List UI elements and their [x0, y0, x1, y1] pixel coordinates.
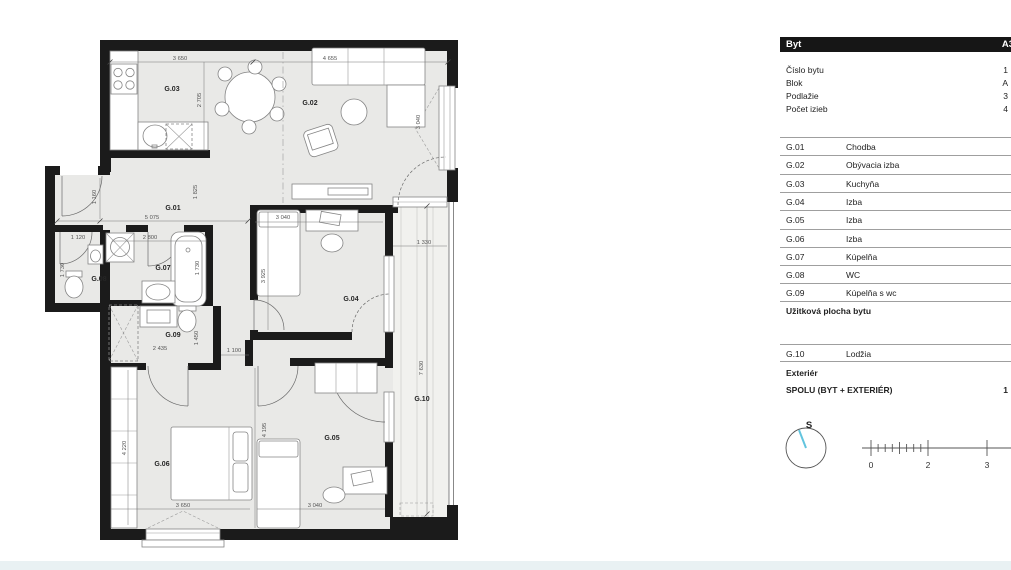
info-row-podlazie: Podlažie 3	[780, 90, 1011, 103]
table-row: G.08WC	[780, 265, 1011, 283]
dim-hall-width: 1 825	[193, 185, 199, 200]
scale-tick-0: 0	[869, 460, 874, 470]
scale-labels: 0 2 3	[869, 460, 990, 470]
total-row: SPOLU (BYT + EXTERIÉR) 1	[780, 381, 1011, 399]
screenshot: 3 650 4 655 2 705 1 160 5 075 1 825 1 12…	[0, 0, 1011, 570]
dim-living-window: 3 040	[416, 115, 422, 130]
info-row-cislo-bytu: Číslo bytu 1	[780, 64, 1011, 77]
info-row-pocet-izieb: Počet izieb 4	[780, 103, 1011, 116]
room5-window	[384, 392, 394, 442]
dim-room5-width: 3 040	[308, 503, 323, 509]
bottom-strip	[0, 561, 1011, 570]
apartment-header-title: Byt	[786, 37, 801, 52]
dim-bath2-width: 2 435	[153, 346, 168, 352]
dim-top-right: 4 655	[323, 56, 338, 62]
dim-entry: 1 160	[92, 190, 98, 205]
dim-hall-length: 5 075	[145, 215, 160, 221]
room-label-g03: G.03	[164, 86, 179, 93]
subtotal-row: Užitková plocha bytu	[780, 301, 1011, 319]
dim-corridor: 1 100	[227, 348, 242, 354]
dim-bedroom-depth: 4 220	[122, 441, 128, 456]
table-row: G.01Chodba	[780, 137, 1011, 155]
table-row: G.09Kúpelňa s wc	[780, 283, 1011, 301]
room-label-g08: G.08	[91, 276, 106, 283]
table-row-loggia: G.10Lodžia	[780, 344, 1011, 362]
table-row: G.04Izba	[780, 192, 1011, 210]
dim-bedroom-width: 3 650	[176, 503, 191, 509]
dim-kitchen-height: 2 705	[197, 93, 203, 108]
compass-and-scale: S 0 2 3	[780, 415, 1011, 477]
loggia-door-sill	[393, 197, 447, 207]
scale-tick-3: 3	[985, 460, 990, 470]
dim-wc-width: 1 120	[71, 235, 86, 241]
room-label-g02: G.02	[302, 100, 317, 107]
dim-loggia-length: 7 630	[419, 361, 425, 376]
dim-bath-depth: 1 730	[195, 261, 201, 276]
floor-plan-drawing: 3 650 4 655 2 705 1 160 5 075 1 825 1 12…	[0, 0, 470, 570]
total-value: 1	[1003, 385, 1008, 395]
dim-room4-depth: 3 925	[261, 269, 267, 284]
exterior-section-label: Exteriér	[780, 364, 1011, 382]
compass-icon: S	[786, 420, 826, 468]
room-label-g06: G.06	[154, 461, 169, 468]
room-label-g05: G.05	[324, 435, 339, 442]
info-row-blok: Blok A	[780, 77, 1011, 90]
dim-wc-depth: 1 730	[60, 263, 66, 278]
room-label-g10: G.10	[414, 396, 429, 403]
apartment-code: A3	[1002, 37, 1011, 52]
table-row: G.02Obývacia izba	[780, 155, 1011, 173]
dim-bath2-depth: 1 450	[194, 331, 200, 346]
table-row: G.05Izba	[780, 210, 1011, 228]
room-label-g07: G.07	[155, 265, 170, 272]
table-row: G.07Kúpelňa	[780, 247, 1011, 265]
dim-bath-width: 2 800	[143, 235, 158, 241]
room-label-g04: G.04	[343, 296, 358, 303]
room-label-g09: G.09	[165, 332, 180, 339]
compass-north-label: S	[806, 420, 812, 431]
scale-bar	[862, 440, 1011, 456]
dim-top-left: 3 650	[173, 56, 188, 62]
apartment-header-bar: Byt A3	[780, 37, 1011, 52]
dim-loggia-width: 1 330	[417, 240, 432, 246]
table-row: G.03Kuchyňa	[780, 174, 1011, 192]
room-label-g01: G.01	[165, 205, 180, 212]
table-row: G.06Izba	[780, 229, 1011, 247]
dim-room4-width: 3 040	[276, 215, 291, 221]
scale-tick-2: 2	[926, 460, 931, 470]
dim-room5-depth: 4 195	[262, 423, 268, 438]
